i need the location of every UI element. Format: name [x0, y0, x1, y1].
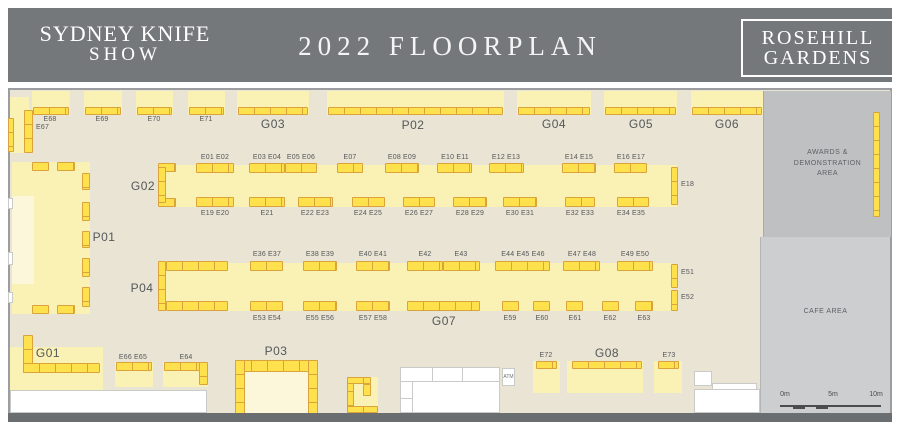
awards-area-label-line3: AREA	[817, 169, 838, 180]
floor-pale-rect	[245, 372, 308, 413]
booth-stand	[536, 361, 557, 369]
booth-label-e34: E34 E35	[571, 210, 691, 217]
booth-stand	[308, 360, 318, 417]
booth-stand	[356, 301, 390, 311]
room-outline	[694, 371, 712, 386]
logo-line2: SHOW	[36, 44, 214, 66]
room-outline	[10, 390, 207, 413]
booth-stand	[33, 107, 69, 115]
booth-label-e72: E72	[486, 352, 606, 359]
room-divider	[412, 381, 413, 413]
booth-stand	[356, 261, 390, 271]
booth-stand	[249, 197, 285, 207]
atm-label: ATM	[503, 374, 513, 380]
booth-stand	[82, 258, 90, 277]
header: SYDNEY KNIFE SHOW 2022 FLOORPLAN ROSEHIL…	[8, 8, 892, 82]
booth-stand	[671, 290, 678, 311]
booth-stand	[328, 107, 503, 115]
booth-label-e57: E57 E58	[313, 315, 433, 322]
booth-stand	[32, 162, 49, 171]
booth-label-g06: G06	[667, 117, 787, 131]
scale-line-step	[793, 407, 805, 409]
booth-label-e67: E67	[36, 124, 49, 131]
booth-stand	[116, 362, 152, 371]
booth-stand	[658, 361, 679, 369]
booth-stand	[363, 384, 371, 396]
booth-stand	[303, 301, 337, 311]
booth-stand	[285, 163, 317, 173]
booth-stand	[352, 197, 385, 207]
booth-stand	[671, 167, 678, 205]
booth-stand	[164, 362, 201, 371]
booth-stand	[82, 202, 90, 221]
booth-label-e16: E16 E17	[571, 154, 691, 161]
room-divider	[432, 367, 433, 381]
booth-stand	[692, 107, 762, 115]
room-outline	[8, 252, 13, 265]
booth-stand	[407, 261, 443, 271]
booth-stand	[166, 301, 228, 311]
scale-line-step	[816, 407, 828, 409]
booth-stand	[489, 163, 524, 173]
booth-stand	[873, 112, 880, 217]
booth-label-e52: E52	[681, 294, 694, 301]
venue-line1: ROSEHILL	[762, 28, 875, 48]
scale-bar: 0m 5m 10m	[770, 391, 888, 411]
floor-pale-rect	[12, 196, 34, 284]
booth-stand	[518, 107, 590, 115]
booth-stand	[23, 363, 100, 373]
cafe-area: CAFE AREA	[760, 237, 890, 413]
booth-stand	[617, 197, 649, 207]
booth-stand	[8, 118, 14, 152]
booth-stand	[566, 301, 583, 311]
booth-stand	[337, 163, 363, 173]
booth-stand	[614, 163, 647, 173]
booth-stand	[385, 163, 419, 173]
booth-label-e49: E49 E50	[575, 251, 695, 258]
booth-stand	[437, 163, 472, 173]
booth-stand	[166, 261, 228, 271]
scale-label-10m: 10m	[864, 391, 888, 398]
booth-stand	[495, 261, 550, 271]
booth-label-p02: P02	[353, 118, 473, 132]
booth-stand	[347, 406, 378, 413]
booth-stand	[563, 261, 600, 271]
booth-stand	[347, 377, 371, 384]
booth-stand	[196, 197, 234, 207]
booth-stand	[503, 197, 537, 207]
booth-label-e71: E71	[146, 116, 266, 123]
scale-label-0m: 0m	[775, 391, 795, 398]
sydney-knife-show-logo: SYDNEY KNIFE SHOW	[36, 21, 214, 66]
booth-stand	[249, 163, 285, 173]
booth-label-e63: E63	[584, 315, 704, 322]
booth-label-e73: E73	[609, 352, 729, 359]
booth-stand	[298, 197, 333, 207]
booth-stand	[235, 360, 318, 372]
venue-line2: GARDENS	[764, 48, 872, 68]
booth-stand	[671, 264, 678, 288]
booth-stand	[602, 301, 619, 311]
booth-label-p01: P01	[44, 230, 164, 244]
booth-label-p04: P04	[82, 281, 202, 295]
booth-label-e18: E18	[681, 181, 694, 188]
booth-stand	[57, 162, 75, 171]
booth-stand	[533, 301, 550, 311]
room-outline	[8, 198, 13, 209]
booth-stand	[189, 107, 224, 115]
booth-stand	[565, 197, 595, 207]
booth-stand	[502, 301, 519, 311]
booth-stand	[196, 163, 234, 173]
scale-label-5m: 5m	[823, 391, 843, 398]
booth-stand	[235, 360, 245, 417]
booth-label-e51: E51	[681, 269, 694, 276]
booth-stand	[562, 163, 596, 173]
room-divider	[400, 398, 412, 399]
awards-demonstration-area: AWARDS & DEMONSTRATION AREA	[763, 91, 891, 237]
booth-stand	[250, 261, 283, 271]
room-divider	[400, 381, 500, 382]
page-title: 2022 FLOORPLAN	[298, 31, 602, 62]
booth-stand	[407, 301, 480, 311]
booth-stand	[453, 197, 487, 207]
booth-stand	[250, 301, 283, 311]
booth-label-g02: G02	[83, 179, 203, 193]
booth-stand	[238, 107, 308, 115]
booth-stand	[85, 107, 121, 115]
room-outline	[694, 389, 760, 413]
booth-stand	[443, 261, 480, 271]
cafe-area-label: CAFE AREA	[804, 308, 848, 315]
room-outline	[400, 367, 500, 413]
atm-box: ATM	[502, 368, 515, 386]
room-divider	[462, 367, 463, 381]
bottom-wall	[8, 413, 892, 422]
booth-stand	[617, 261, 653, 271]
awards-area-label-line1: AWARDS &	[807, 148, 848, 159]
booth-stand	[605, 107, 676, 115]
booth-stand	[57, 305, 75, 314]
booth-stand	[199, 362, 208, 385]
awards-area-label-line2: DEMONSTRATION	[794, 159, 861, 170]
rosehill-gardens-logo: ROSEHILL GARDENS	[741, 19, 895, 77]
booth-stand	[303, 261, 337, 271]
booth-label-e64: E64	[126, 354, 246, 361]
booth-stand	[137, 107, 172, 115]
booth-stand	[403, 197, 435, 207]
booth-stand	[635, 301, 653, 311]
booth-stand	[32, 305, 49, 314]
booth-stand	[572, 361, 642, 369]
room-outline	[8, 292, 13, 303]
